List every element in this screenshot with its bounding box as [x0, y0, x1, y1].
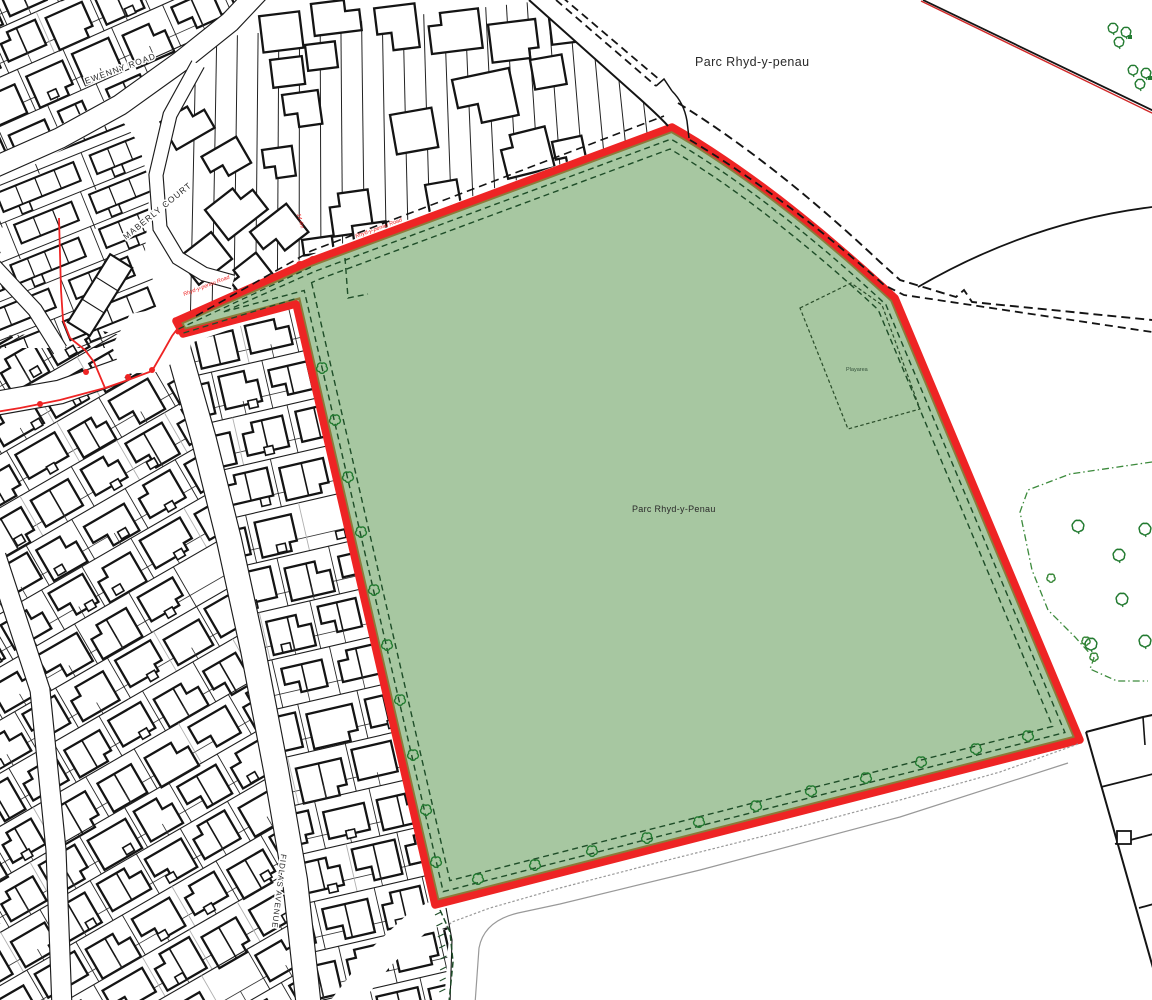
svg-text:Parc Rhyd-y-penau: Parc Rhyd-y-penau: [695, 55, 810, 69]
svg-text:Parc Rhyd-y-Penau: Parc Rhyd-y-Penau: [632, 504, 716, 514]
svg-text:Playarea: Playarea: [846, 367, 869, 373]
